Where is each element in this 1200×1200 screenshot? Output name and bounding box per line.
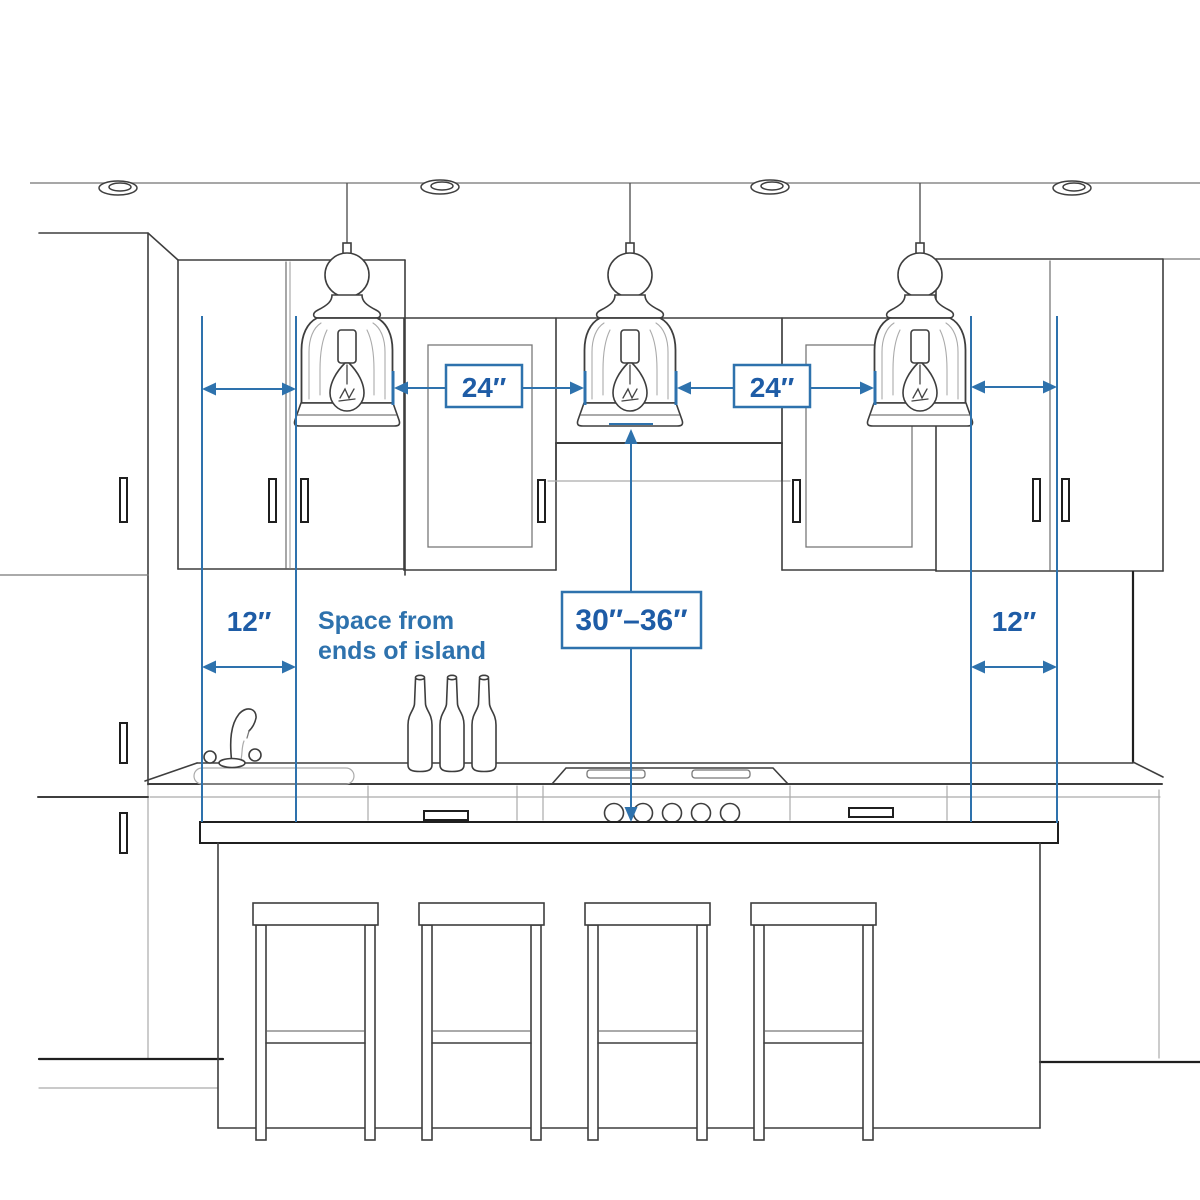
pendant-light-2: [577, 183, 682, 426]
bar-stool: [751, 903, 876, 1140]
bar-stool: [419, 903, 544, 1140]
recessed-light-icon: [751, 180, 789, 194]
cooktop: [552, 768, 788, 823]
right-wall: [1040, 572, 1200, 1062]
dimension-pendant-gap-right: 24″: [676, 365, 875, 407]
island-end-note-line1: Space from: [318, 607, 454, 635]
pendant-gap-right-label: 24″: [750, 372, 795, 403]
left-wall-cabinets: [0, 233, 223, 1088]
pendant-light-1: [294, 183, 399, 426]
recessed-light-icon: [1053, 181, 1091, 195]
kitchen-pendant-spacing-diagram: 12″ 12″ 24″ 24″: [0, 0, 1200, 1200]
countertop: [145, 763, 1162, 820]
island-end-note: Space from ends of island: [318, 607, 486, 665]
wine-bottles: [408, 675, 496, 771]
pendant-height-label: 30″–36″: [575, 604, 687, 637]
diagram-canvas: 12″ 12″ 24″ 24″: [0, 0, 1200, 1200]
island-end-right-label: 12″: [992, 606, 1037, 637]
pendant-gap-left-label: 24″: [462, 372, 507, 403]
pendant-light-3: [867, 183, 972, 426]
ceiling: [30, 180, 1200, 195]
kitchen-island: [200, 822, 1058, 1128]
bar-stool: [253, 903, 378, 1140]
recessed-light-icon: [99, 181, 137, 195]
dimension-island-end-right: 12″: [971, 316, 1057, 823]
bar-stool: [585, 903, 710, 1140]
recessed-light-icon: [421, 180, 459, 194]
island-end-left-label: 12″: [227, 606, 272, 637]
sink-faucet: [194, 709, 354, 784]
island-end-note-line2: ends of island: [318, 637, 486, 665]
upper-cabinet-right-block: [936, 259, 1200, 571]
